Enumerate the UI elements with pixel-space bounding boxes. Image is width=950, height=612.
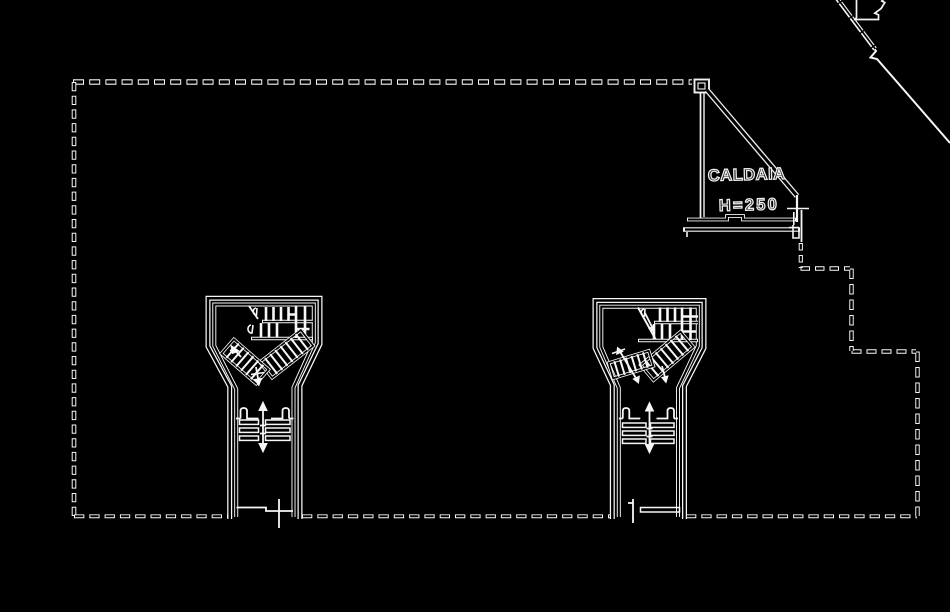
svg-text:CALDAIA: CALDAIA [708,165,786,185]
svg-text:H=250: H=250 [719,195,780,215]
